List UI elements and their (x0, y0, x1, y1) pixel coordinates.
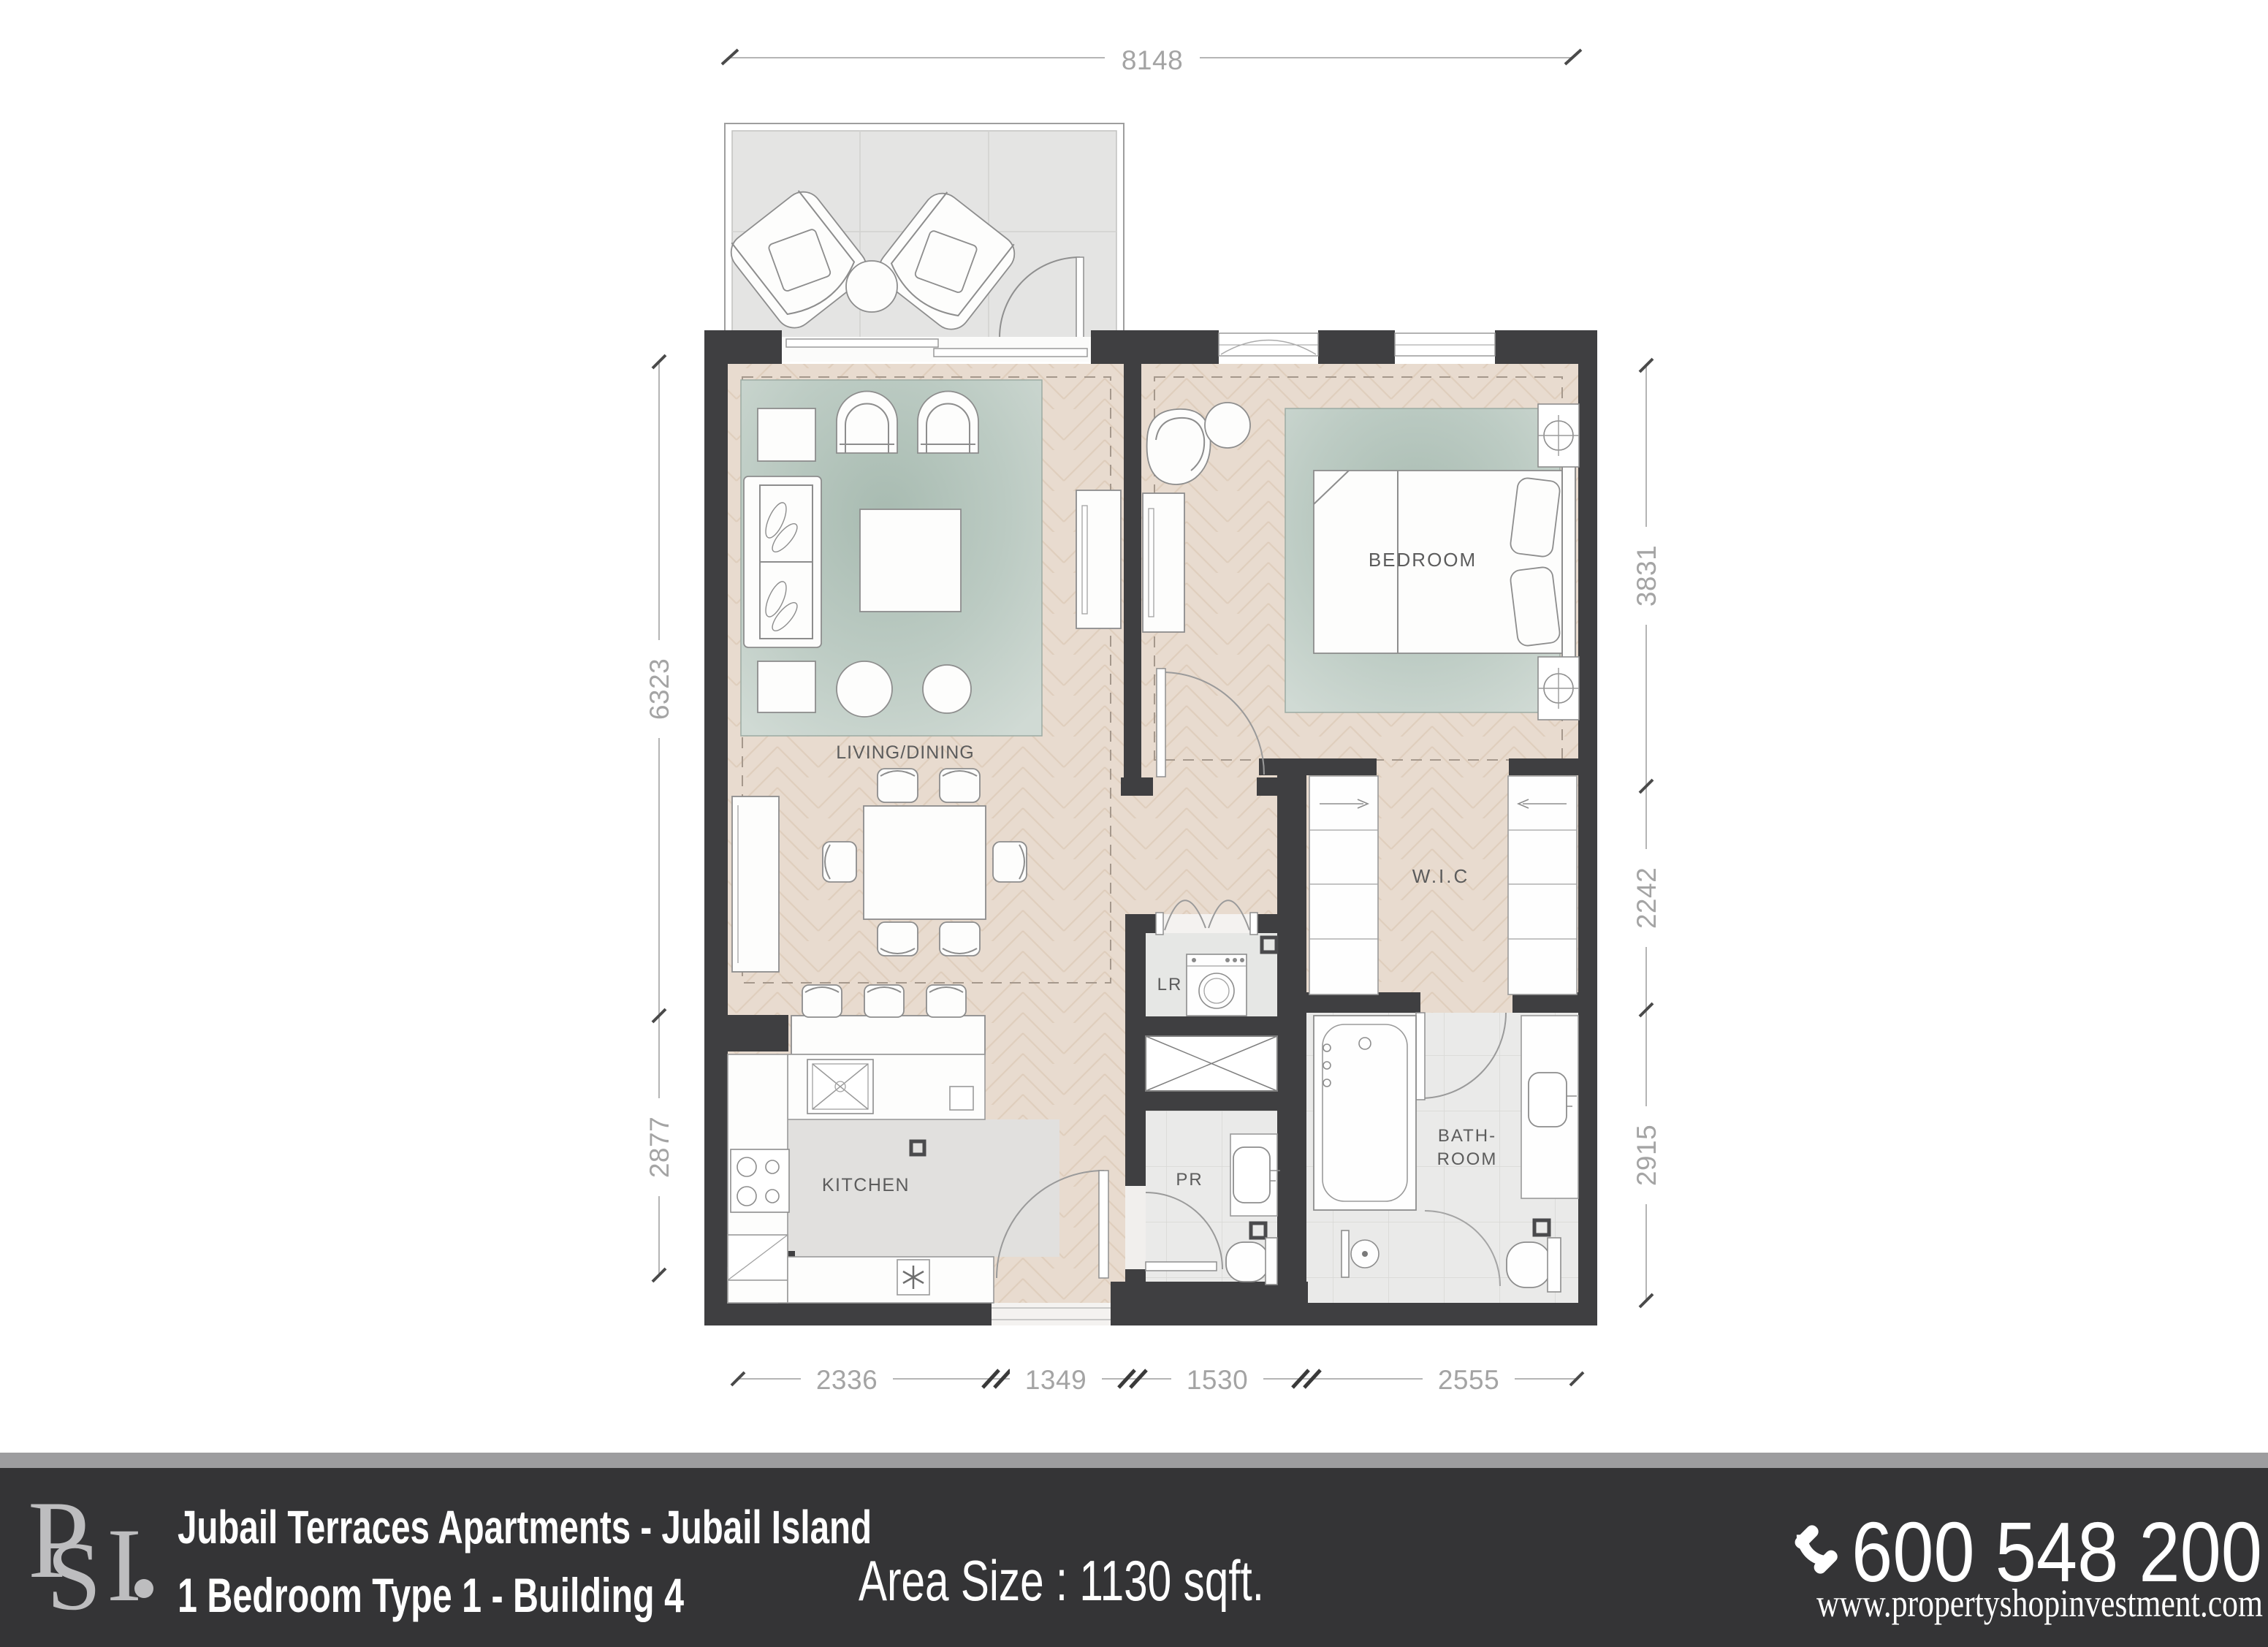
svg-text:KITCHEN: KITCHEN (822, 1175, 910, 1195)
svg-text:2242: 2242 (1632, 867, 1662, 929)
svg-text:PR: PR (1176, 1170, 1203, 1190)
svg-text:1530: 1530 (1187, 1365, 1248, 1395)
svg-text:Jubail Terraces Apartments - J: Jubail Terraces Apartments - Jubail Isla… (178, 1501, 872, 1553)
svg-text:2915: 2915 (1632, 1125, 1662, 1186)
svg-text:S: S (47, 1522, 102, 1630)
svg-text:I: I (107, 1507, 142, 1624)
svg-text:2555: 2555 (1438, 1365, 1499, 1395)
svg-text:2877: 2877 (644, 1117, 674, 1178)
svg-text:1349: 1349 (1025, 1365, 1087, 1395)
svg-text:8148: 8148 (1122, 45, 1183, 75)
svg-text:LR: LR (1157, 975, 1183, 994)
svg-text:3831: 3831 (1632, 545, 1662, 606)
svg-text:Area Size : 1130 sqft.: Area Size : 1130 sqft. (859, 1548, 1264, 1613)
svg-text:W.I.C: W.I.C (1412, 865, 1470, 887)
svg-text:6323: 6323 (644, 658, 674, 720)
svg-text:ROOM: ROOM (1437, 1149, 1498, 1169)
svg-text:BATH-: BATH- (1438, 1126, 1496, 1146)
svg-text:1 Bedroom Type 1 - Building 4: 1 Bedroom Type 1 - Building 4 (178, 1568, 684, 1622)
svg-text:www.propertyshopinvestment.com: www.propertyshopinvestment.com (1816, 1581, 2263, 1625)
svg-text:LIVING/DINING: LIVING/DINING (836, 742, 974, 763)
svg-text:BEDROOM: BEDROOM (1369, 549, 1477, 571)
svg-text:2336: 2336 (816, 1365, 878, 1395)
